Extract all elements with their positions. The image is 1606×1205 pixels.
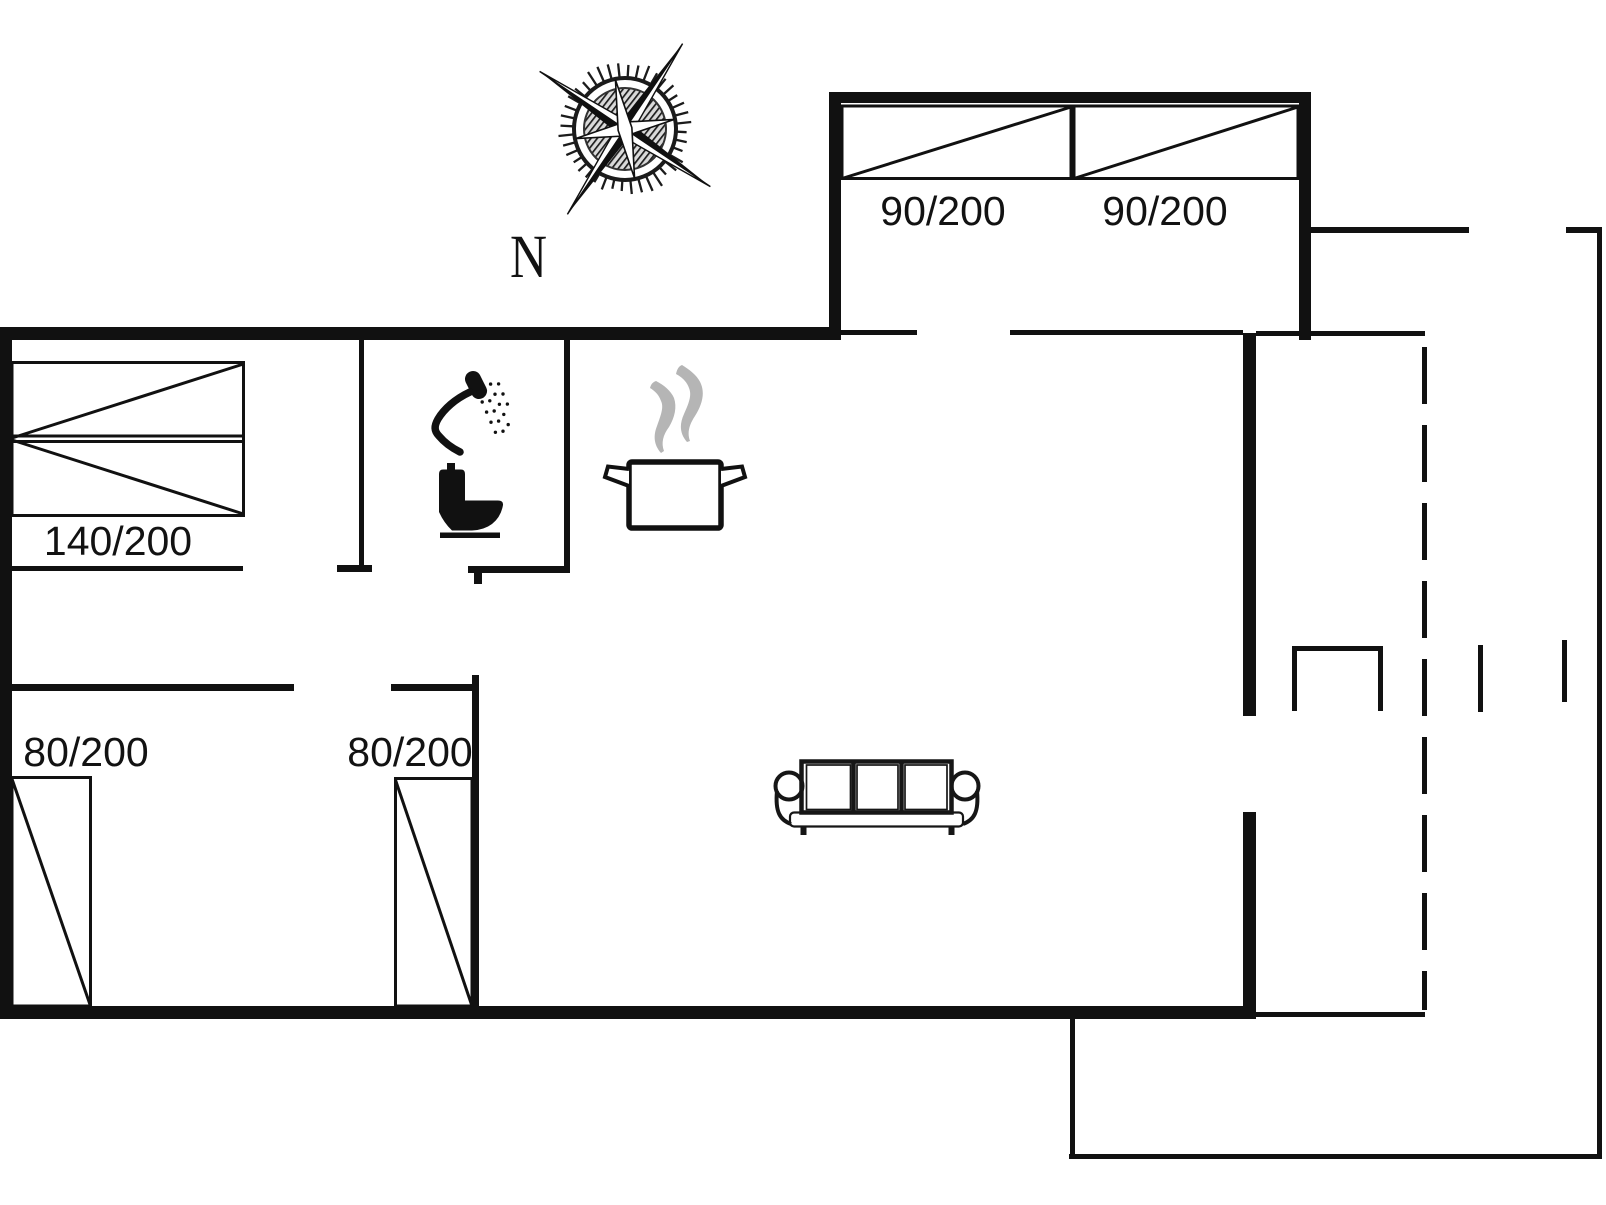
- svg-text:80/200: 80/200: [23, 729, 148, 775]
- svg-text:90/200: 90/200: [1102, 188, 1227, 234]
- svg-text:80/200: 80/200: [347, 729, 472, 775]
- svg-text:90/200: 90/200: [880, 188, 1005, 234]
- svg-text:N: N: [510, 224, 547, 291]
- svg-text:140/200: 140/200: [44, 518, 192, 564]
